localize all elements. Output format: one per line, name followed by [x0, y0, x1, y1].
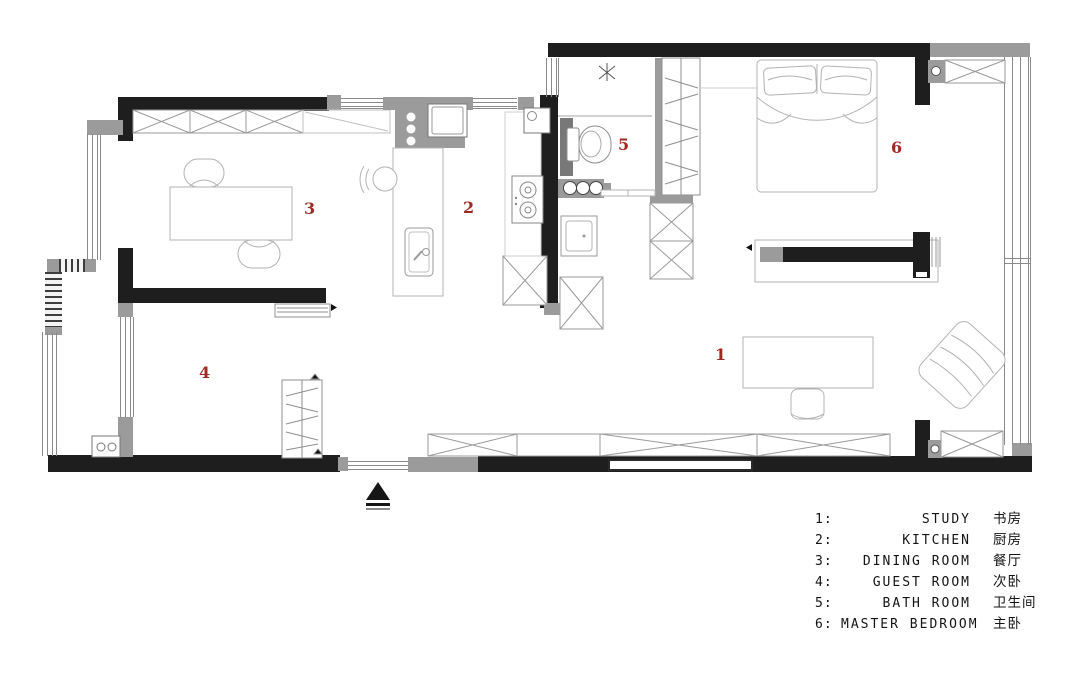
shower-head-icon: [599, 63, 615, 81]
legend-num: 5:: [815, 596, 841, 611]
room-marker-master: 6: [891, 140, 902, 156]
legend-name-zh: 次卧: [993, 570, 1053, 590]
legend-name-zh: 书房: [993, 507, 1053, 527]
console-partition: [746, 232, 940, 282]
cabinet-x-bottom-right: [931, 431, 1003, 457]
sliding-door: [275, 304, 337, 317]
kitchen-island: [360, 148, 443, 296]
legend-num: 4:: [815, 575, 841, 590]
room-marker-bath: 5: [618, 137, 629, 153]
washer-box: [92, 436, 120, 457]
bed: [700, 60, 877, 192]
legend-name-en: KITCHEN: [841, 533, 971, 548]
bathroom-fixtures: [558, 63, 655, 256]
legend-row-study: 1: STUDY 书房: [815, 507, 1053, 528]
cabinet-x-column: [650, 203, 693, 279]
legend: 1: STUDY 书房 2: KITCHEN 厨房 3: DINING ROOM…: [815, 507, 1053, 633]
legend-name-zh: 餐厅: [993, 549, 1053, 569]
sliding-door-arrow: [331, 304, 337, 311]
kitchen-counter-top: [383, 97, 473, 148]
cabinet-x-hall: [560, 277, 603, 329]
lounge-chair: [915, 318, 1009, 413]
cabinet-x-kitchen: [503, 256, 547, 305]
legend-num: 6:: [815, 617, 841, 632]
legend-name-en: STUDY: [841, 512, 971, 527]
floor-plan: 1 2 3 4 5 6 1: STUDY 书房 2: KITCHEN 厨房 3:…: [0, 0, 1080, 673]
kitchen-stove: [505, 108, 550, 256]
legend-name-zh: 卫生间: [993, 591, 1053, 611]
dining-table: [170, 159, 292, 268]
legend-name-en: BATH ROOM: [841, 596, 971, 611]
legend-name-en: MASTER BEDROOM: [841, 617, 971, 632]
bath-door: [601, 190, 628, 196]
legend-num: 2:: [815, 533, 841, 548]
room-marker-study: 1: [715, 347, 726, 363]
legend-row-kitchen: 2: KITCHEN 厨房: [815, 528, 1053, 549]
wardrobe-bath: [662, 58, 700, 195]
legend-name-en: DINING ROOM: [841, 554, 971, 569]
legend-name-zh: 厨房: [993, 528, 1053, 548]
room-marker-dining: 3: [304, 201, 315, 217]
legend-row-dining: 3: DINING ROOM 餐厅: [815, 549, 1053, 570]
legend-name-zh: 主卧: [993, 612, 1053, 632]
legend-num: 3:: [815, 554, 841, 569]
legend-row-bath: 5: BATH ROOM 卫生间: [815, 591, 1053, 612]
legend-num: 1:: [815, 512, 841, 527]
cabinet-x-dining-row: [133, 110, 303, 133]
cabinet-x-top-right: [932, 60, 1006, 83]
toilet-tank: [567, 128, 579, 161]
room-marker-guest: 4: [199, 365, 210, 381]
wardrobe-guest: [282, 374, 322, 458]
study-desk: [743, 337, 873, 419]
room-marker-kitchen: 2: [463, 200, 474, 216]
door-swing-arrow: [746, 244, 752, 251]
legend-row-master: 6: MASTER BEDROOM 主卧: [815, 612, 1053, 633]
cabinet-x-bottom-row: [428, 434, 890, 456]
north-arrow-icon: [366, 482, 390, 510]
legend-row-guest: 4: GUEST ROOM 次卧: [815, 570, 1053, 591]
cabinet-wedge: [303, 110, 390, 133]
legend-name-en: GUEST ROOM: [841, 575, 971, 590]
